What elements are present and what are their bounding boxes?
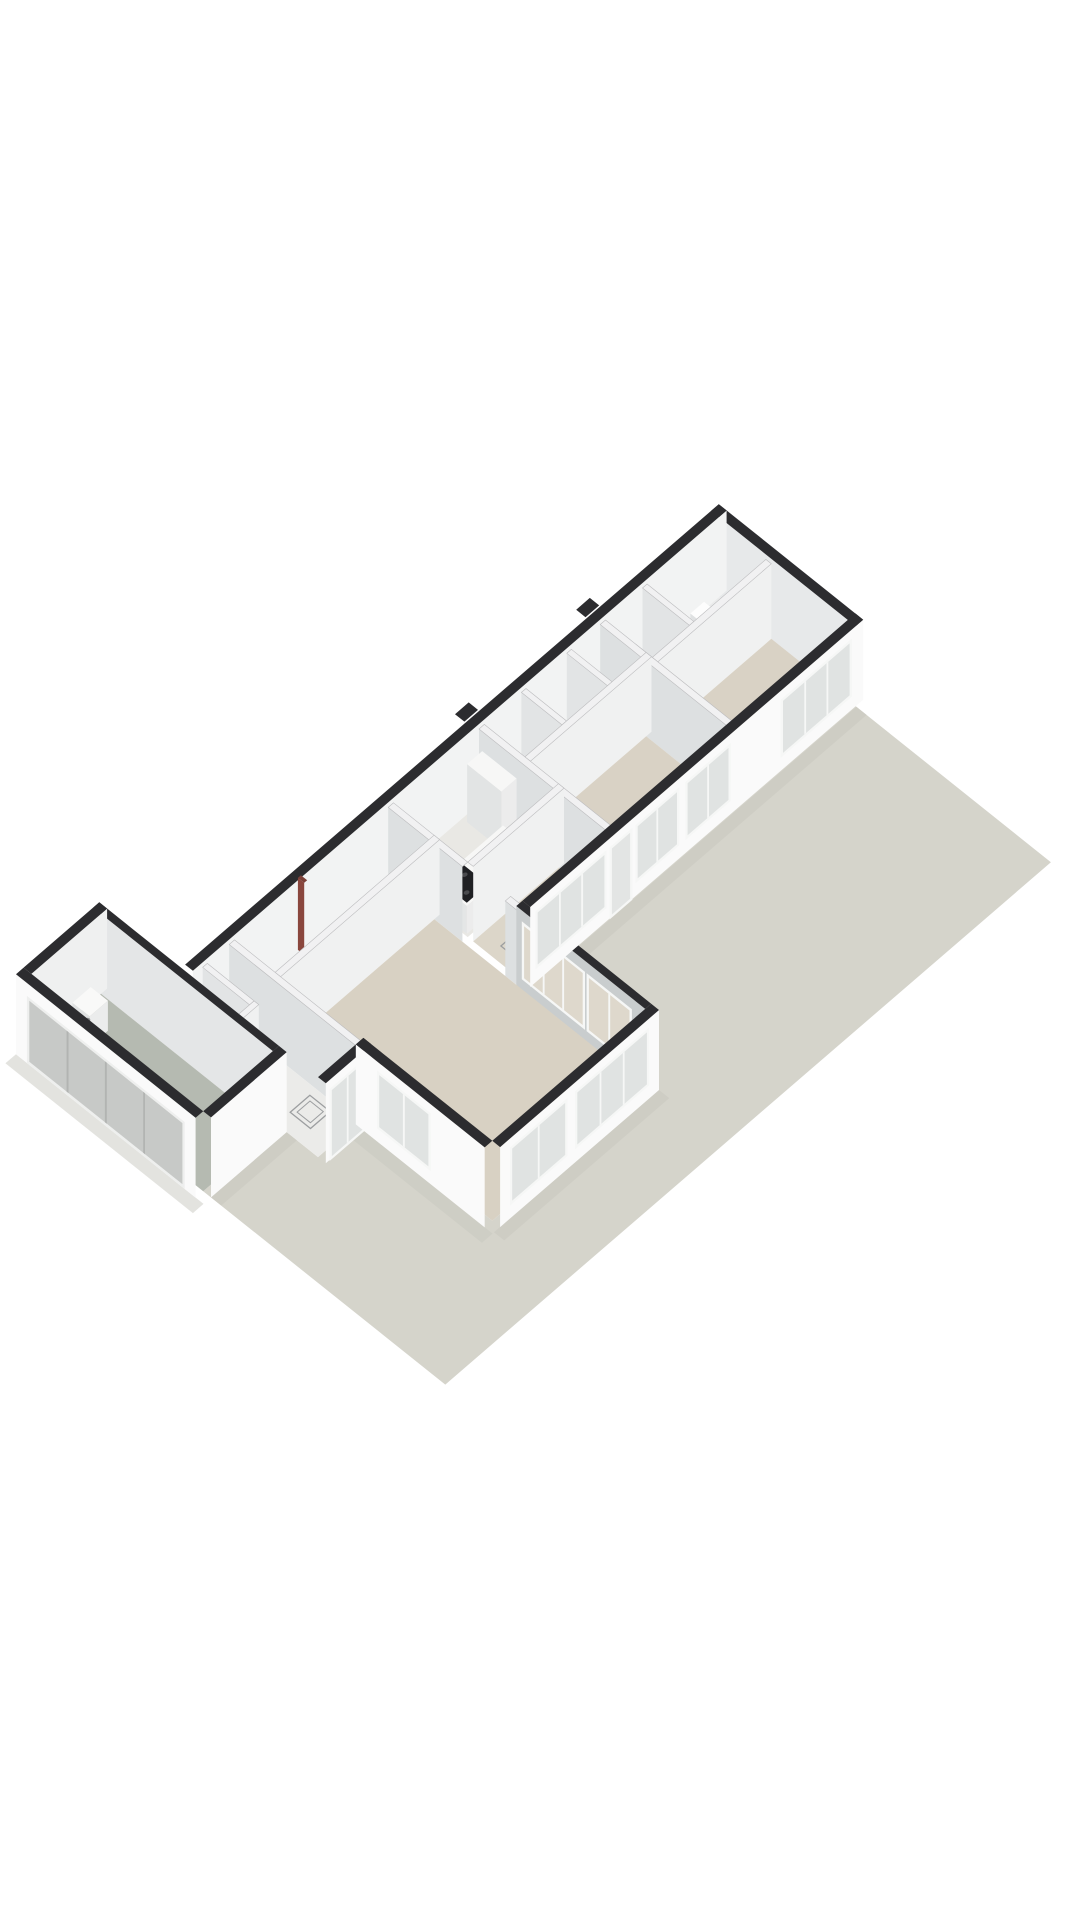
window-bedroom-ne-mullion	[827, 662, 829, 716]
window-living-se-a-mullion	[600, 1072, 602, 1126]
window-living-se-a-mullion	[623, 1052, 625, 1106]
open-door-red-face	[298, 878, 304, 955]
window-dining-mullion	[581, 873, 583, 927]
window-living-sw-mullion	[403, 1094, 405, 1148]
window-bedroom-ne-mullion	[804, 681, 806, 735]
window-living-se-b-mullion	[538, 1125, 540, 1179]
window-living-garden-b-mullion	[608, 994, 610, 1048]
floorplan-3d-canvas	[0, 0, 1080, 1920]
garage-door-mullion	[67, 1031, 69, 1094]
garage-door-mullion	[143, 1092, 145, 1155]
door-hall-glazed-mullion	[347, 1076, 349, 1144]
window-bedroom2-a-mullion	[707, 765, 709, 819]
window-living-garden-a-mullion	[562, 957, 564, 1011]
garage-door-mullion	[105, 1061, 107, 1124]
window-dining-mullion	[559, 893, 561, 947]
floorplan-viewport	[0, 0, 1080, 1920]
wall-passage-upper-face	[505, 901, 517, 985]
window-bedroom2-b-mullion	[656, 809, 658, 863]
